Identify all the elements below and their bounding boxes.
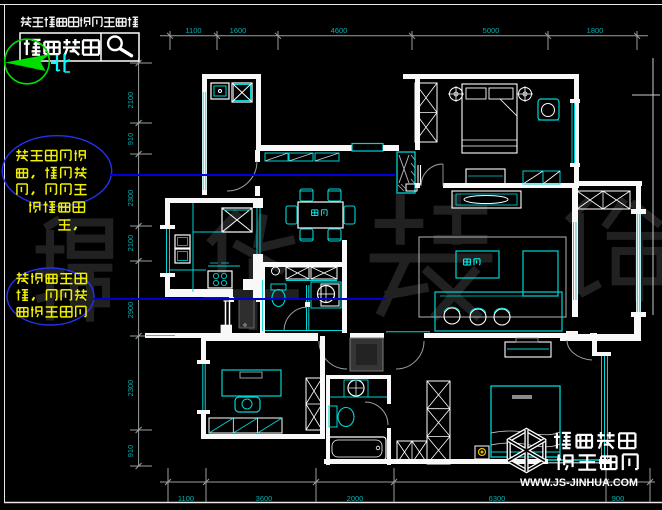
svg-text:1100: 1100 xyxy=(178,494,194,503)
svg-text:3600: 3600 xyxy=(256,494,273,503)
svg-text:5000: 5000 xyxy=(483,26,500,35)
svg-text:910: 910 xyxy=(126,133,135,146)
svg-text:4600: 4600 xyxy=(331,26,348,35)
svg-text:2100: 2100 xyxy=(126,92,135,109)
svg-text:2100: 2100 xyxy=(126,235,135,252)
svg-text:2900: 2900 xyxy=(126,302,135,319)
svg-text:2300: 2300 xyxy=(126,190,135,207)
svg-text:910: 910 xyxy=(126,445,135,458)
svg-text:2300: 2300 xyxy=(126,380,135,397)
svg-text:2000: 2000 xyxy=(347,494,364,503)
svg-text:1600: 1600 xyxy=(230,26,247,35)
svg-text:900: 900 xyxy=(612,494,625,503)
svg-text:6300: 6300 xyxy=(489,494,506,503)
svg-text:1800: 1800 xyxy=(587,26,604,35)
svg-text:WWW.JS-JINHUA.COM: WWW.JS-JINHUA.COM xyxy=(520,477,638,489)
svg-text:1100: 1100 xyxy=(185,26,201,35)
